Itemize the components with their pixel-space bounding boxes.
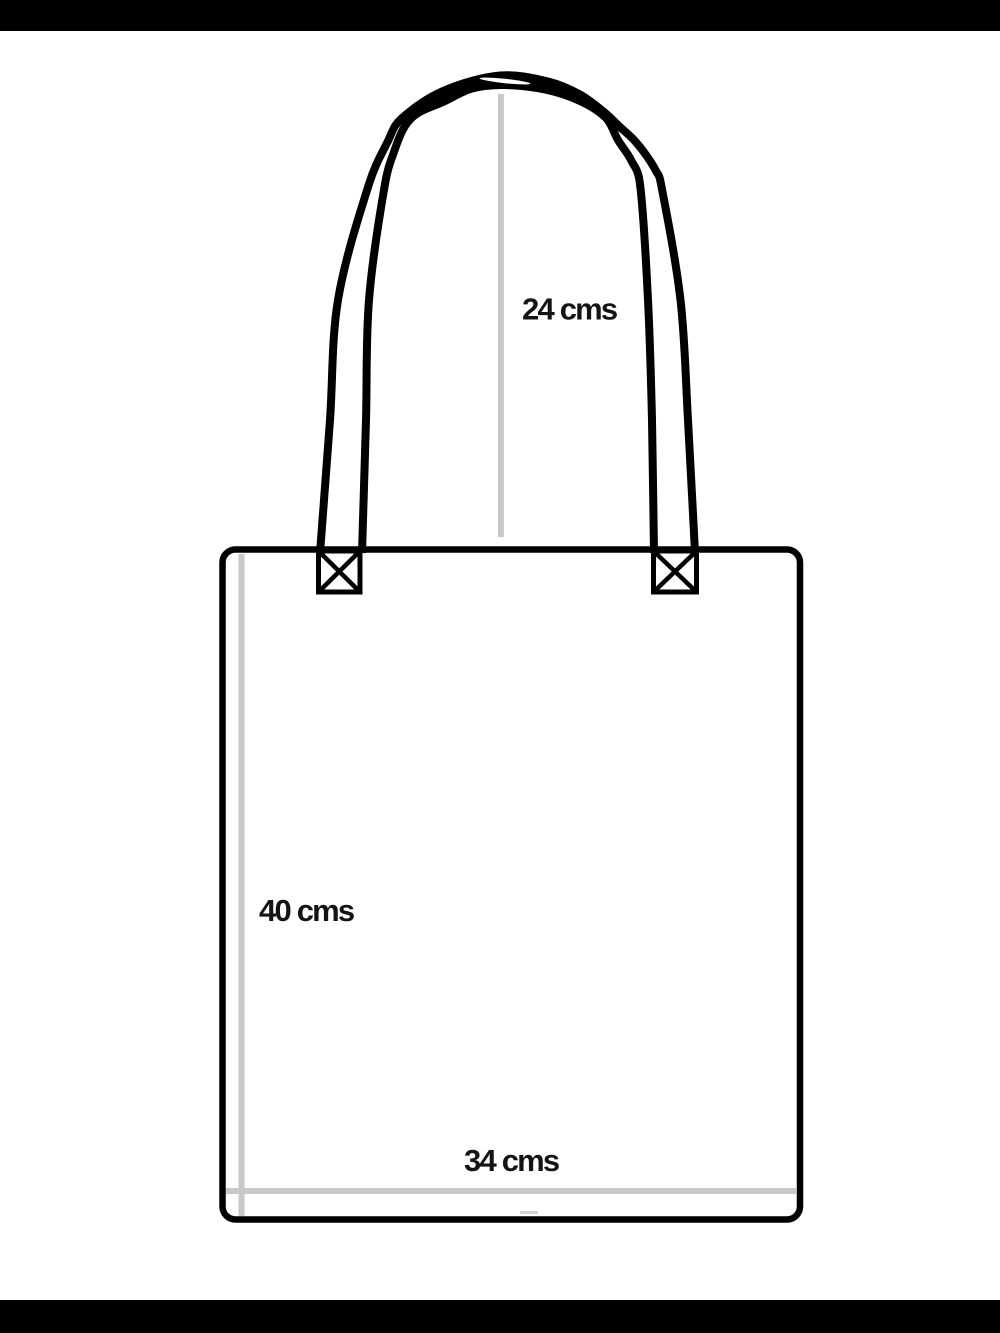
svg-text:34 cms: 34 cms [464,1143,559,1178]
svg-text:24 cms: 24 cms [522,291,617,326]
svg-text:40 cms: 40 cms [259,893,354,928]
